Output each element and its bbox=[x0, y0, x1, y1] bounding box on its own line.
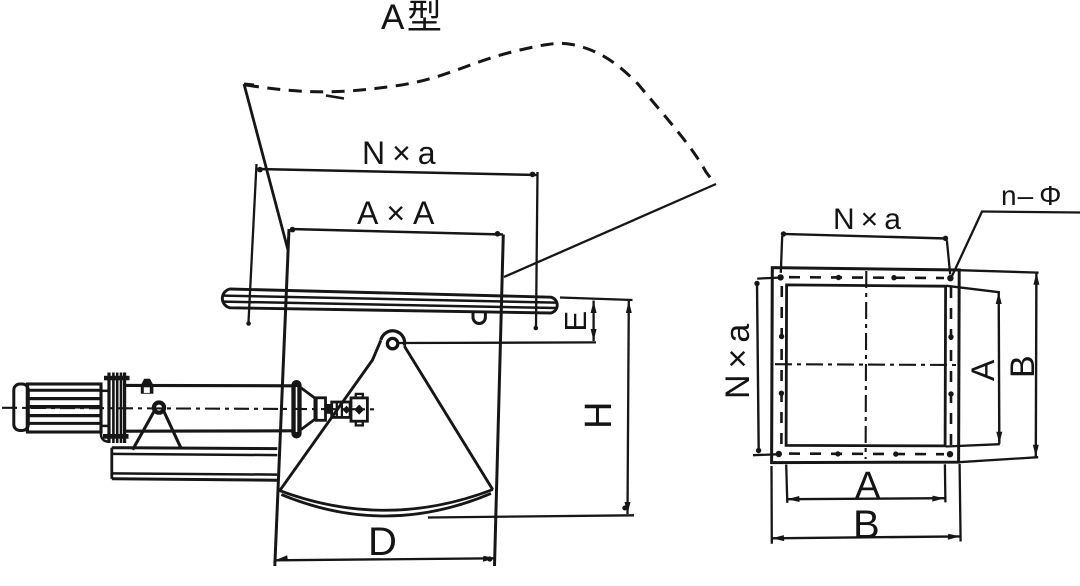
svg-text:A: A bbox=[965, 359, 1001, 381]
svg-text:n–Φ: n–Φ bbox=[1001, 180, 1062, 211]
svg-text:A: A bbox=[855, 465, 881, 507]
svg-text:H: H bbox=[578, 402, 620, 429]
svg-text:D: D bbox=[368, 520, 397, 564]
svg-text:E: E bbox=[558, 311, 593, 332]
svg-text:N×a: N×a bbox=[362, 135, 436, 171]
svg-text:A×A: A×A bbox=[357, 195, 435, 231]
svg-text:B: B bbox=[853, 503, 880, 547]
svg-text:B: B bbox=[1004, 355, 1042, 378]
svg-text:A型: A型 bbox=[381, 0, 444, 37]
svg-text:N×a: N×a bbox=[833, 203, 901, 236]
svg-text:N×a: N×a bbox=[719, 324, 757, 399]
